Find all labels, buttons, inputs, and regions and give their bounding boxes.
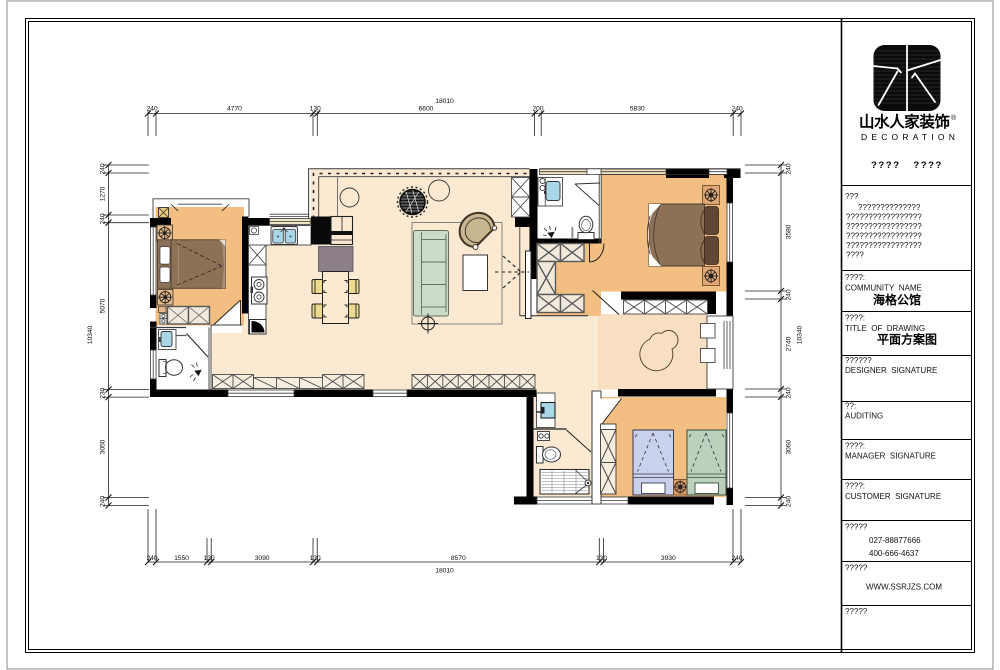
svg-text:240: 240 [786,496,793,507]
svg-text:200: 200 [532,106,543,113]
svg-text:5830: 5830 [630,106,645,113]
svg-text:240: 240 [100,163,107,174]
svg-text:6600: 6600 [419,106,434,113]
svg-text:3050: 3050 [100,439,107,454]
svg-text:8570: 8570 [451,555,466,562]
svg-text:COMMUNITY NAME: COMMUNITY NAME [845,284,922,293]
svg-text:DESIGNER SIGNATURE: DESIGNER SIGNATURE [845,366,937,375]
svg-text:??????????????: ?????????????? [858,203,921,212]
svg-text:18010: 18010 [435,568,454,575]
svg-text:AUDITING: AUDITING [845,412,883,421]
svg-text:®: ® [951,114,957,122]
svg-text:????:: ????: [845,482,865,491]
svg-text:240: 240 [146,106,157,113]
svg-text:??:: ??: [845,402,856,411]
svg-text:????:: ????: [845,314,865,323]
svg-text:240: 240 [146,555,157,562]
svg-text:MANAGER SIGNATURE: MANAGER SIGNATURE [845,452,936,461]
svg-text:3090: 3090 [255,555,270,562]
svg-text:130: 130 [310,555,321,562]
svg-text:3930: 3930 [661,555,676,562]
svg-text:??????: ?????? [845,356,872,365]
svg-text:3580: 3580 [786,224,793,239]
svg-text:?????: ????? [845,564,868,573]
svg-text:1550: 1550 [174,555,189,562]
svg-text:130: 130 [310,106,321,113]
svg-text:平面方案图: 平面方案图 [877,332,937,347]
svg-text:240: 240 [100,213,107,224]
svg-text:WWW.SSRJZS.COM: WWW.SSRJZS.COM [866,583,942,592]
svg-text:???? ????: ???? ???? [871,160,943,171]
svg-text:10340: 10340 [87,325,94,344]
svg-text:027-88877666: 027-88877666 [869,536,921,545]
svg-text:240: 240 [731,555,742,562]
svg-text:5070: 5070 [100,298,107,313]
svg-text:10340: 10340 [797,325,804,344]
svg-text:海格公馆: 海格公馆 [873,292,921,307]
svg-text:????:: ????: [845,273,865,282]
svg-text:DECORATION: DECORATION [861,132,959,142]
svg-text:????: ???? [846,251,864,260]
svg-text:1270: 1270 [100,186,107,201]
svg-text:18010: 18010 [435,98,454,105]
svg-text:?????????????????: ????????????????? [846,222,922,231]
svg-text:240: 240 [786,387,793,398]
svg-text:240: 240 [732,106,743,113]
svg-text:400-666-4637: 400-666-4637 [869,549,919,558]
svg-text:230: 230 [100,387,107,398]
svg-text:?????????????????: ????????????????? [846,241,922,250]
svg-text:????:: ????: [845,442,865,451]
svg-text:2740: 2740 [786,336,793,351]
svg-text:4770: 4770 [227,106,242,113]
svg-text:?????: ????? [845,607,868,616]
svg-text:?????????????????: ????????????????? [846,232,922,241]
svg-text:130: 130 [204,555,215,562]
svg-text:?????????????????: ????????????????? [846,213,922,222]
svg-text:240: 240 [786,289,793,300]
svg-text:山水人家装饰: 山水人家装饰 [859,112,950,131]
svg-text:130: 130 [596,555,607,562]
svg-text:240: 240 [100,496,107,507]
svg-text:???: ??? [845,192,859,201]
svg-text:CUSTOMER SIGNATURE: CUSTOMER SIGNATURE [845,492,941,501]
svg-text:?????: ????? [845,523,868,532]
svg-text:240: 240 [786,163,793,174]
svg-text:3060: 3060 [786,440,793,455]
